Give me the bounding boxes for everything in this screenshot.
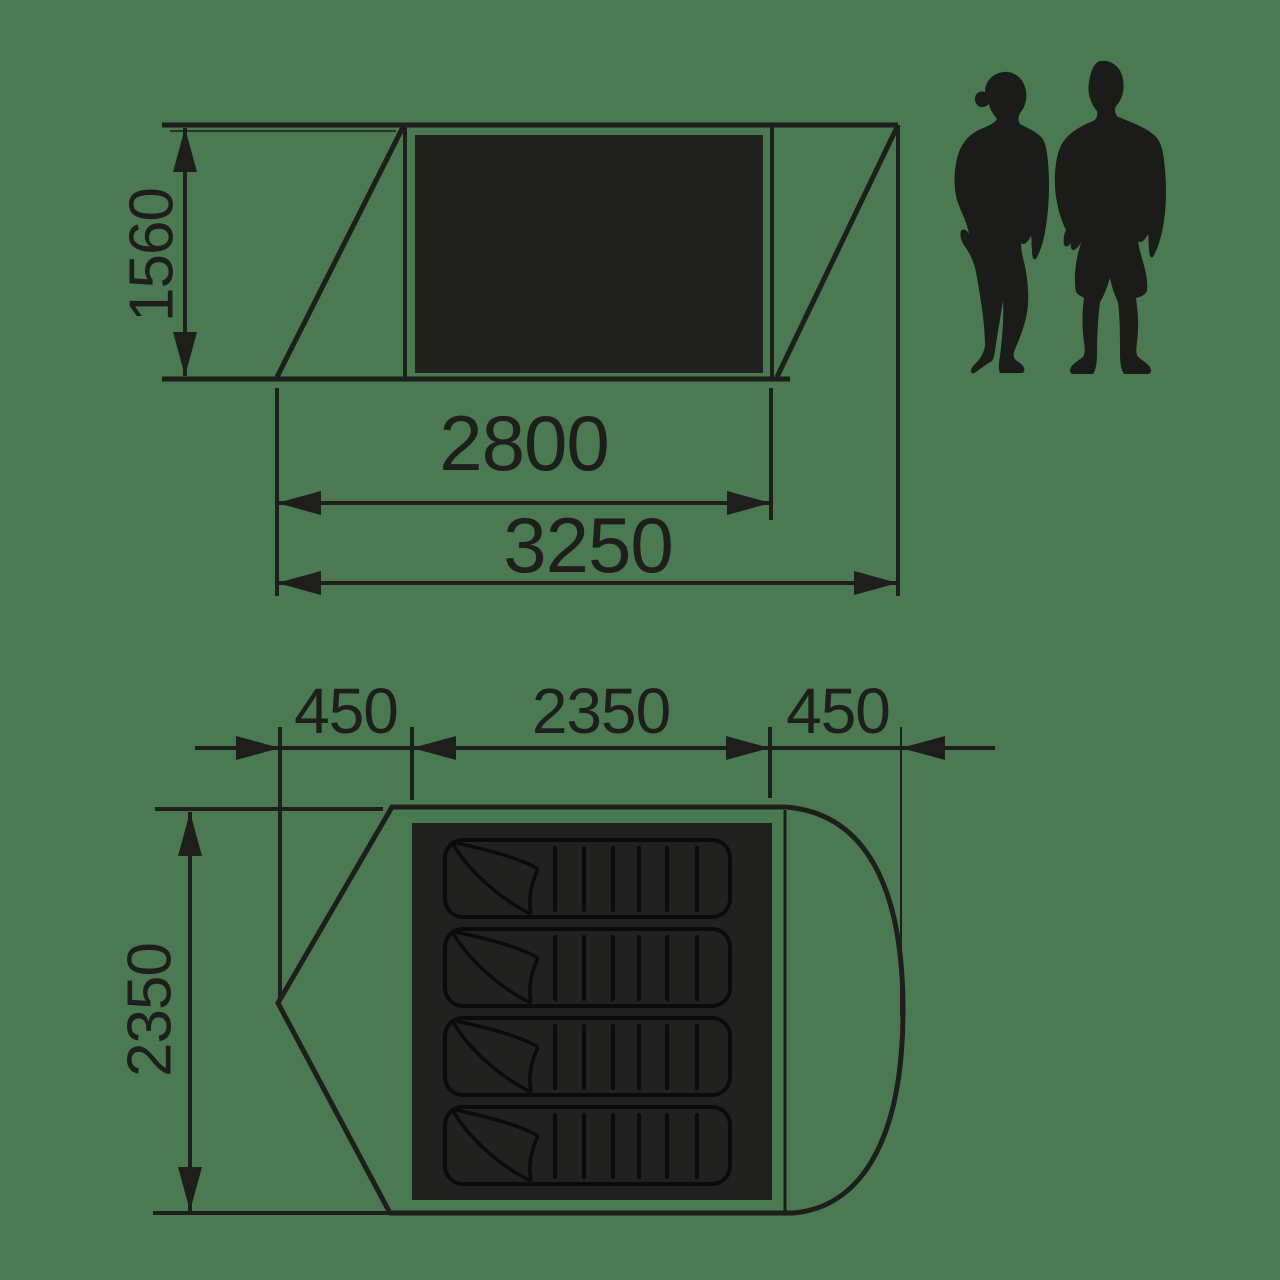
arrowhead-right — [854, 571, 898, 595]
side-view: 1560 2800 3250 — [118, 125, 899, 596]
plan-right-porch-label: 450 — [786, 675, 890, 747]
man-silhouette — [1055, 61, 1166, 374]
side-left-slant — [277, 127, 403, 377]
side-right-slant — [777, 125, 898, 377]
side-height-label: 1560 — [118, 188, 187, 322]
plan-left-porch-label: 450 — [294, 675, 398, 747]
tent-dimension-diagram: 1560 2800 3250 — [0, 0, 1280, 1280]
plan-inner-width-label: 2350 — [532, 675, 670, 747]
arrowhead-left — [277, 491, 321, 515]
arrowhead-down — [173, 332, 197, 376]
arrowhead-left — [277, 571, 321, 595]
arrowhead-up — [178, 812, 202, 856]
arrowhead-down — [178, 1167, 202, 1211]
side-inner-width-label: 2800 — [439, 399, 609, 487]
arrowhead-right — [726, 736, 770, 760]
arrowhead-right — [727, 491, 771, 515]
plan-depth-label: 2350 — [116, 943, 185, 1077]
scale-figures — [955, 61, 1166, 374]
side-outer-width-label: 3250 — [503, 501, 673, 589]
woman-silhouette — [955, 72, 1049, 374]
arrowhead-up — [173, 128, 197, 172]
floor-plan: 450 2350 450 2350 — [116, 675, 996, 1213]
side-door-panel — [415, 135, 763, 373]
diagram-canvas: 1560 2800 3250 — [0, 0, 1280, 1280]
arrowhead-right — [236, 736, 280, 760]
inner-tent-floor — [412, 823, 768, 1200]
arrowhead-left — [901, 736, 945, 760]
arrowhead-left — [412, 736, 456, 760]
